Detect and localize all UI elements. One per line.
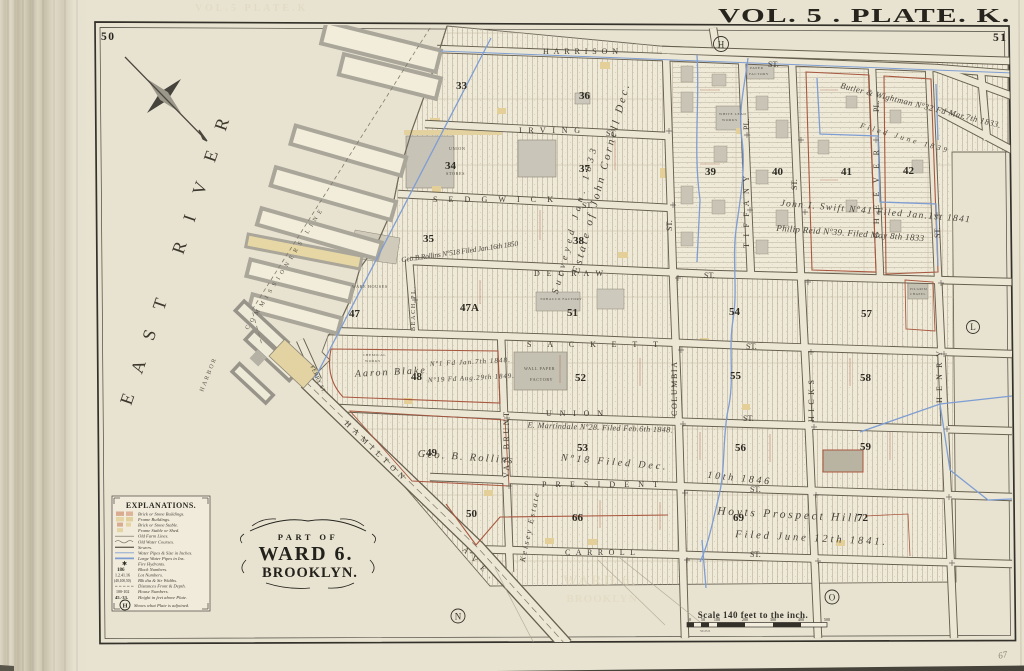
svg-text:ST.: ST.	[704, 271, 715, 280]
svg-text:ST.: ST.	[790, 179, 799, 190]
svg-text:500: 500	[824, 617, 830, 622]
svg-text:WARE HOUSES: WARE HOUSES	[352, 284, 388, 289]
svg-text:PL.: PL.	[872, 101, 881, 112]
svg-text:Shows what Plate is adjoined.: Shows what Plate is adjoined.	[134, 603, 189, 608]
svg-text:40: 40	[772, 166, 784, 178]
svg-text:Brick or Stone Buildings.: Brick or Stone Buildings.	[138, 512, 184, 517]
svg-text:PILGRIM: PILGRIM	[910, 287, 927, 291]
svg-text:400: 400	[798, 617, 804, 622]
svg-text:72: 72	[857, 512, 869, 524]
svg-text:ST.: ST.	[746, 342, 757, 351]
svg-text:Brick or Stone Stable.: Brick or Stone Stable.	[138, 523, 178, 528]
svg-text:35: 35	[423, 233, 435, 245]
svg-text:53: 53	[577, 442, 589, 454]
svg-text:BEACH PL.: BEACH PL.	[411, 287, 417, 332]
svg-text:Old Farm Lines.: Old Farm Lines.	[138, 534, 169, 539]
svg-text:UNION: UNION	[449, 146, 466, 151]
svg-text:50: 50	[466, 508, 478, 520]
svg-text:59: 59	[860, 441, 872, 453]
svg-text:Frame Stable or Shed.: Frame Stable or Shed.	[137, 528, 179, 533]
svg-text:House Numbers.: House Numbers.	[137, 589, 169, 594]
svg-text:50 25 0: 50 25 0	[700, 629, 710, 633]
svg-text:H: H	[122, 603, 127, 610]
svg-text:Old Water Courses.: Old Water Courses.	[138, 539, 174, 544]
svg-text:ST.: ST.	[750, 550, 761, 559]
svg-text:H: H	[718, 40, 725, 50]
svg-text:54: 54	[729, 306, 741, 318]
svg-text:47: 47	[349, 308, 361, 320]
svg-text:EXPLANATIONS.: EXPLANATIONS.	[126, 501, 196, 510]
svg-text:52: 52	[575, 372, 587, 384]
svg-text:✱: ✱	[122, 560, 127, 567]
svg-text:36: 36	[579, 90, 591, 102]
svg-text:0: 0	[689, 617, 691, 622]
svg-text:L: L	[970, 322, 976, 332]
svg-text:ST.: ST.	[665, 220, 674, 231]
svg-text:50: 50	[101, 31, 116, 43]
svg-text:VOL. 5 . PLATE. K.: VOL. 5 . PLATE. K.	[718, 6, 1011, 27]
svg-text:57: 57	[861, 308, 873, 320]
svg-text:66: 66	[572, 512, 584, 524]
svg-text:VOL.5 PLATE.K: VOL.5 PLATE.K	[195, 3, 308, 14]
svg-text:100: 100	[714, 617, 720, 622]
svg-text:ST.: ST.	[750, 485, 761, 494]
svg-text:FACTORY: FACTORY	[530, 377, 553, 382]
svg-text:51: 51	[993, 32, 1008, 44]
svg-text:WORKS: WORKS	[365, 359, 381, 363]
svg-text:45.-33.: 45.-33.	[115, 595, 128, 600]
svg-text:55: 55	[730, 370, 742, 382]
svg-text:41: 41	[841, 166, 852, 178]
svg-text:39: 39	[705, 166, 717, 178]
svg-text:WORKS: WORKS	[722, 118, 738, 122]
svg-text:WARD 6.: WARD 6.	[563, 573, 638, 589]
svg-text:CHAPEL: CHAPEL	[910, 292, 926, 296]
svg-text:58: 58	[860, 372, 872, 384]
svg-text:50: 50	[701, 617, 705, 622]
svg-text:BROOKLYN: BROOKLYN	[566, 593, 637, 605]
svg-text:VAN BRUNT: VAN BRUNT	[502, 412, 511, 478]
svg-text:CHEMICAL: CHEMICAL	[363, 353, 386, 357]
svg-text:O: O	[829, 593, 836, 603]
svg-text:100-102: 100-102	[116, 589, 129, 594]
svg-text:56: 56	[735, 442, 747, 454]
svg-text:Fire Hydrants.: Fire Hydrants.	[137, 561, 165, 566]
svg-text:Frame Buildings.: Frame Buildings.	[137, 517, 170, 522]
svg-text:Water Pipes & Size in Inches.: Water Pipes & Size in Inches.	[138, 550, 192, 555]
svg-text:1.2.41.16: 1.2.41.16	[115, 573, 130, 578]
svg-text:ST.: ST.	[933, 227, 942, 238]
svg-text:300: 300	[770, 617, 776, 622]
svg-text:TOBACCO FACTORY: TOBACCO FACTORY	[540, 297, 582, 301]
svg-text:Large Water Pipes in Ins.: Large Water Pipes in Ins.	[137, 556, 185, 561]
svg-text:Distances Front & Depth.: Distances Front & Depth.	[137, 584, 186, 589]
svg-text:PAPER: PAPER	[750, 66, 764, 70]
svg-text:200: 200	[742, 617, 748, 622]
svg-text:33: 33	[456, 80, 468, 92]
svg-text:PRESIDENT: PRESIDENT	[542, 480, 658, 489]
svg-text:ST.: ST.	[743, 414, 754, 423]
svg-text:51: 51	[567, 307, 578, 319]
svg-text:WHITE LEAD: WHITE LEAD	[719, 112, 746, 116]
svg-text:STORES: STORES	[446, 171, 465, 176]
svg-text:Block Numbers.: Block Numbers.	[138, 567, 167, 572]
svg-text:FACTORY: FACTORY	[749, 72, 769, 76]
svg-text:WALL PAPER: WALL PAPER	[524, 366, 555, 371]
svg-text:Lot Numbers.: Lot Numbers.	[137, 573, 163, 578]
svg-text:47A: 47A	[460, 302, 479, 314]
svg-text:ST.: ST.	[768, 60, 779, 69]
svg-text:BROOKLYN.: BROOKLYN.	[262, 565, 358, 581]
svg-text:WARD 6.: WARD 6.	[258, 543, 353, 565]
svg-text:PL.: PL.	[742, 119, 751, 130]
svg-text:Blk dia & Str Widths.: Blk dia & Str Widths.	[138, 578, 177, 583]
svg-text:Sewers.: Sewers.	[138, 545, 152, 550]
svg-text:N: N	[455, 612, 462, 622]
svg-text:42: 42	[903, 165, 915, 177]
svg-text:PART OF: PART OF	[278, 532, 338, 542]
svg-text:CARROLL: CARROLL	[565, 548, 635, 557]
svg-text:Height in feet above Plate.: Height in feet above Plate.	[137, 595, 187, 600]
